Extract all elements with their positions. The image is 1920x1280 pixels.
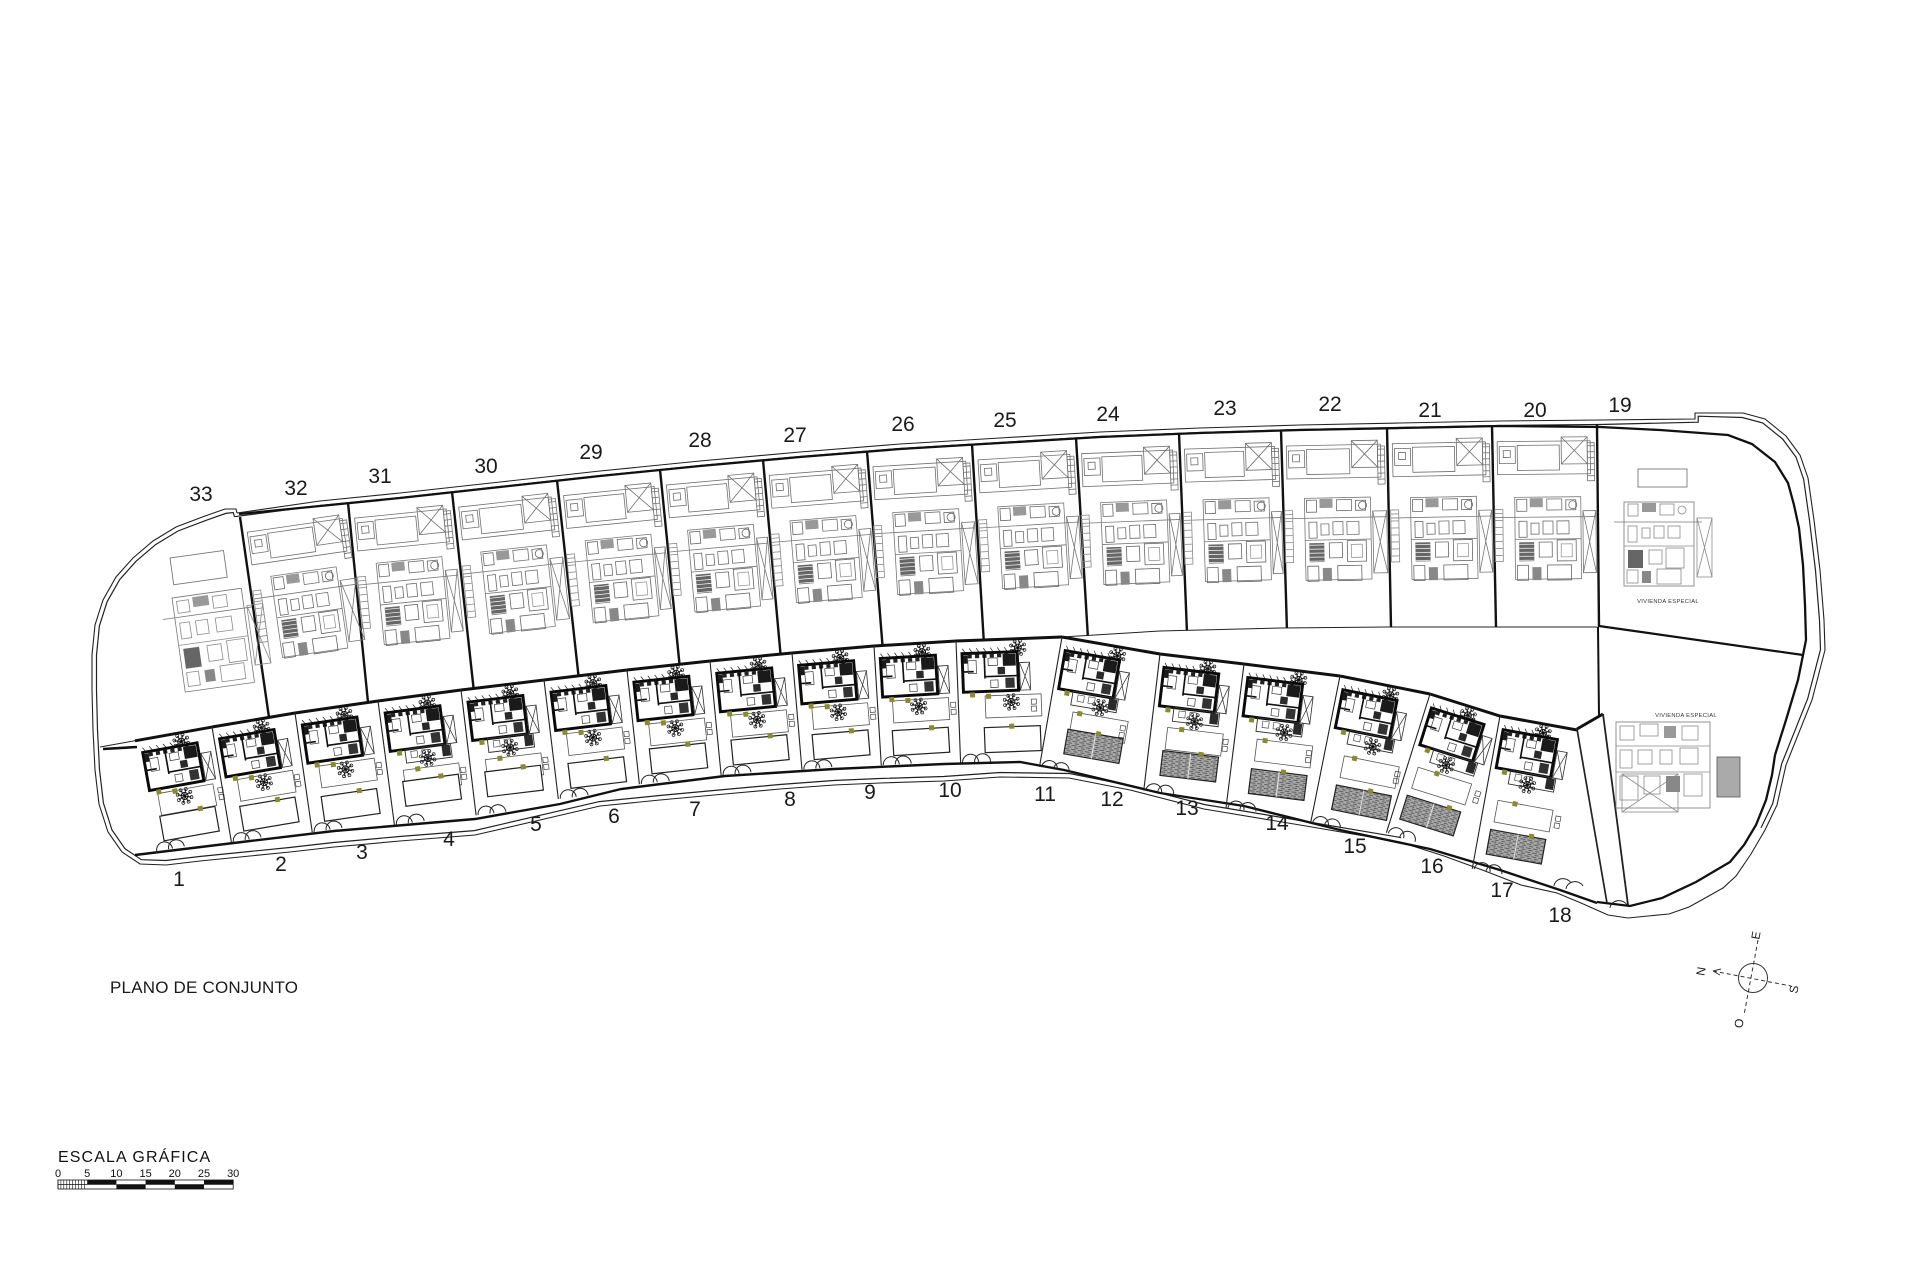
svg-text:14: 14	[1265, 812, 1289, 835]
svg-text:26: 26	[891, 413, 914, 436]
svg-text:25: 25	[198, 1168, 210, 1180]
svg-text:27: 27	[783, 424, 806, 447]
svg-text:33: 33	[189, 483, 212, 506]
svg-text:32: 32	[284, 477, 307, 500]
svg-text:15: 15	[139, 1168, 151, 1180]
svg-text:30: 30	[474, 455, 497, 478]
svg-text:28: 28	[688, 429, 711, 452]
svg-text:11: 11	[1034, 783, 1056, 806]
svg-text:20: 20	[169, 1168, 181, 1180]
svg-text:13: 13	[1175, 797, 1198, 820]
svg-text:4: 4	[443, 828, 455, 851]
svg-text:29: 29	[579, 441, 602, 464]
svg-text:30: 30	[227, 1168, 239, 1180]
svg-text:VIVIENDA ESPECIAL: VIVIENDA ESPECIAL	[1655, 713, 1717, 719]
svg-text:7: 7	[689, 798, 701, 821]
svg-text:9: 9	[864, 781, 876, 804]
svg-text:25: 25	[993, 409, 1016, 432]
svg-text:17: 17	[1490, 879, 1513, 902]
svg-text:5: 5	[84, 1168, 90, 1180]
svg-text:19: 19	[1608, 394, 1631, 417]
svg-text:2: 2	[275, 853, 287, 876]
svg-text:VIVIENDA ESPECIAL: VIVIENDA ESPECIAL	[1637, 599, 1699, 605]
svg-text:22: 22	[1318, 393, 1341, 416]
svg-text:20: 20	[1523, 399, 1546, 422]
svg-text:15: 15	[1343, 835, 1366, 858]
svg-text:18: 18	[1548, 904, 1571, 927]
svg-text:0: 0	[55, 1168, 61, 1180]
svg-text:16: 16	[1420, 855, 1443, 878]
svg-text:10: 10	[110, 1168, 122, 1180]
svg-text:6: 6	[608, 805, 620, 828]
svg-text:PLANO DE CONJUNTO: PLANO DE CONJUNTO	[110, 978, 298, 997]
svg-text:31: 31	[368, 465, 391, 488]
svg-text:8: 8	[784, 788, 796, 811]
svg-text:12: 12	[1100, 788, 1123, 811]
svg-text:ESCALA GRÁFICA: ESCALA GRÁFICA	[58, 1147, 211, 1166]
svg-text:23: 23	[1213, 397, 1236, 420]
svg-text:1: 1	[173, 868, 185, 891]
svg-text:5: 5	[530, 813, 542, 836]
svg-text:21: 21	[1418, 399, 1441, 422]
svg-text:24: 24	[1096, 403, 1120, 426]
svg-text:10: 10	[938, 779, 961, 802]
svg-text:3: 3	[356, 841, 368, 864]
